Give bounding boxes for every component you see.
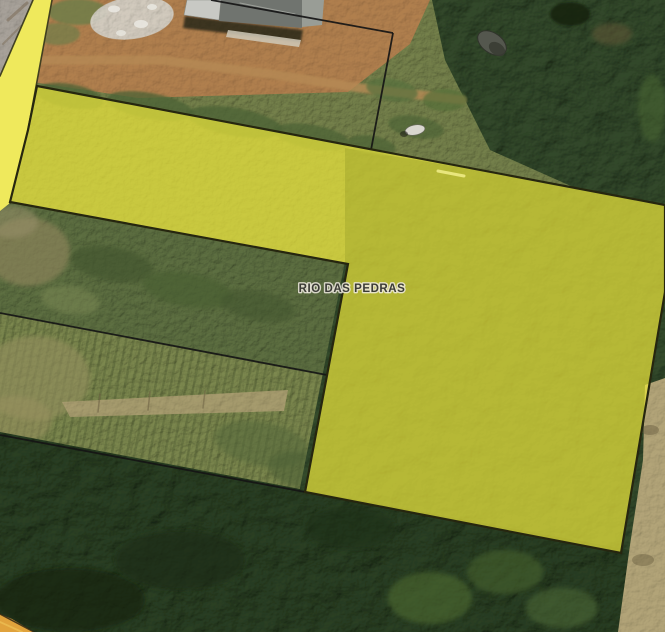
tan-field-speck-2 — [632, 554, 654, 566]
satellite-map[interactable]: RIO DAS PEDRAS — [0, 0, 665, 632]
forest-light-edge — [638, 74, 665, 142]
place-label: RIO DAS PEDRAS — [299, 283, 406, 295]
small-structure-shadow — [400, 131, 408, 137]
rubble-spot-2 — [134, 20, 148, 28]
tan-field-speck — [641, 425, 659, 435]
bottom-canopy-light-3 — [526, 588, 598, 628]
bottom-forest-dark — [0, 568, 145, 632]
map-viewport[interactable]: RIO DAS PEDRAS — [0, 0, 665, 632]
forest-brown-patch — [592, 23, 632, 45]
bottom-forest-dark-3 — [305, 506, 395, 550]
rubble-spot — [108, 6, 120, 13]
building-roof-panel — [302, 0, 324, 27]
bottom-canopy-light-2 — [467, 550, 543, 594]
forest-hole — [550, 2, 590, 26]
bottom-forest-dark-2 — [115, 530, 245, 590]
scrub-bush-7 — [423, 89, 467, 111]
rubble-spot-3 — [147, 4, 157, 10]
rubble-spot-4 — [116, 30, 126, 36]
bottom-canopy-light — [388, 572, 472, 624]
